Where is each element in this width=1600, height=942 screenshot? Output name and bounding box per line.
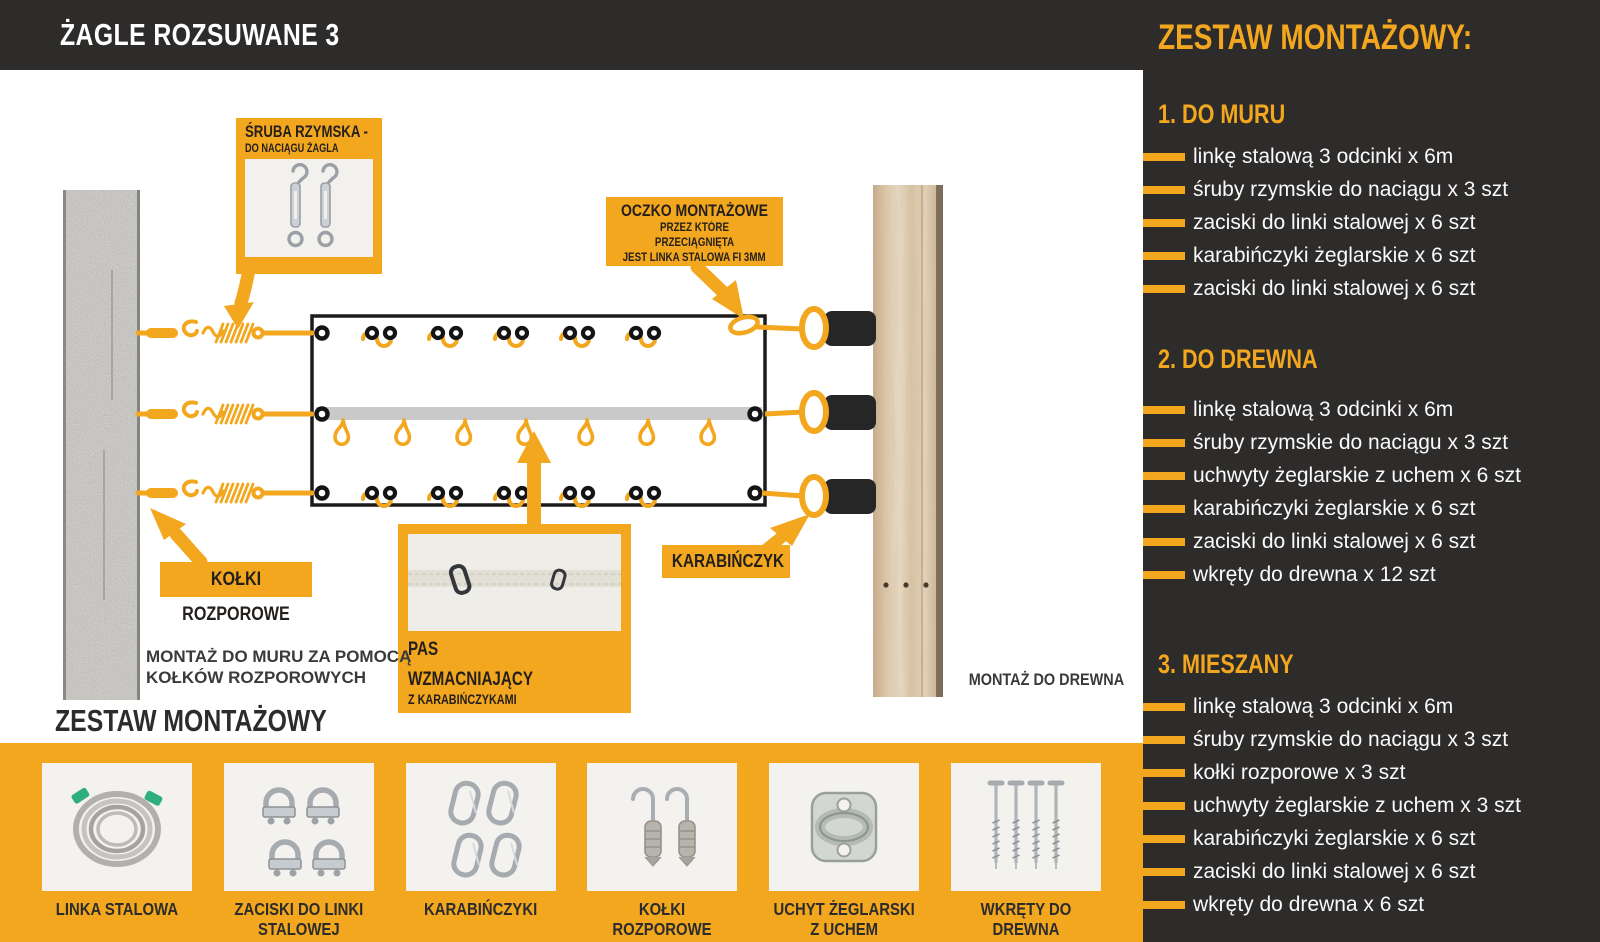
product-label: LINKA STALOWA xyxy=(32,900,202,920)
list-item: zaciski do linki stalowej x 6 szt xyxy=(1143,272,1600,305)
dash-bullet-icon xyxy=(1143,252,1185,260)
callout-sruba-rzymska: ŚRUBA RZYMSKA - DO NACIĄGU ŻAGLA xyxy=(236,118,382,274)
list-item: wkręty do drewna x 12 szt xyxy=(1143,558,1600,591)
callout-kolki-rozporowe: KOŁKI ROZPOROWE xyxy=(160,562,312,597)
dash-bullet-icon xyxy=(1143,472,1185,480)
list-item: linkę stalową 3 odcinki x 6m xyxy=(1143,140,1600,173)
dash-bullet-icon xyxy=(1143,186,1185,194)
list-item: śruby rzymskie do naciągu x 3 szt xyxy=(1143,173,1600,206)
reinforcing-strip xyxy=(316,407,762,420)
turnbuckle-cable-row xyxy=(138,321,312,342)
sruba-arrow-icon xyxy=(224,270,254,329)
dash-bullet-icon xyxy=(1143,703,1185,711)
product-card-zaciski: ZACISKI DO LINKI STALOWEJ xyxy=(224,763,374,942)
product-card-uchyt-zeglarski: UCHYT ŻEGLARSKI Z UCHEM xyxy=(769,763,919,942)
product-label: WKRĘTY DO DREWNA xyxy=(941,900,1111,939)
dash-bullet-icon xyxy=(1143,901,1185,909)
panel-heading: ZESTAW MONTAŻOWY: xyxy=(1158,18,1551,58)
list-item: śruby rzymskie do naciągu x 3 szt xyxy=(1143,723,1600,756)
dash-bullet-icon xyxy=(1143,802,1185,810)
product-strip: LINKA STALOWA xyxy=(0,743,1143,942)
section-items-do-muru: linkę stalową 3 odcinki x 6m śruby rzyms… xyxy=(1143,140,1600,305)
bottom-heading: ZESTAW MONTAŻOWY xyxy=(55,703,395,739)
list-item: uchwyty żeglarskie z uchem x 3 szt xyxy=(1143,789,1600,822)
list-item: zaciski do linki stalowej x 6 szt xyxy=(1143,855,1600,888)
dash-bullet-icon xyxy=(1143,439,1185,447)
dash-bullet-icon xyxy=(1143,835,1185,843)
wood-screw-dot xyxy=(923,582,928,587)
wire-clamps-icon xyxy=(224,763,374,891)
section-heading-do-drewna: 2. DO DREWNA xyxy=(1158,344,1358,375)
list-item: wkręty do drewna x 6 szt xyxy=(1143,888,1600,921)
dash-bullet-icon xyxy=(1143,505,1185,513)
callout-karabinczyk: KARABIŃCZYK xyxy=(662,545,790,578)
list-item: zaciski do linki stalowej x 6 szt xyxy=(1143,206,1600,239)
product-label: KARABIŃCZYKI xyxy=(396,900,566,920)
turnbuckle-cable-row xyxy=(138,402,312,423)
section-items-mieszany: linkę stalową 3 odcinki x 6m śruby rzyms… xyxy=(1143,690,1600,921)
oczko-arrow-icon xyxy=(697,267,744,319)
dash-bullet-icon xyxy=(1143,736,1185,744)
product-card-wkrety: WKRĘTY DO DREWNA xyxy=(951,763,1101,942)
concrete-wall xyxy=(63,190,140,700)
dash-bullet-icon xyxy=(1143,153,1185,161)
list-item: karabińczyki żeglarskie x 6 szt xyxy=(1143,822,1600,855)
dash-bullet-icon xyxy=(1143,406,1185,414)
product-card-linka-stalowa: LINKA STALOWA xyxy=(42,763,192,942)
post-attachments xyxy=(757,309,876,515)
mounting-strap xyxy=(824,479,876,514)
pad-eye-icon xyxy=(769,763,919,891)
list-item: śruby rzymskie do naciągu x 3 szt xyxy=(1143,426,1600,459)
sail-ring xyxy=(802,309,826,347)
dash-bullet-icon xyxy=(1143,219,1185,227)
product-label: ZACISKI DO LINKI STALOWEJ xyxy=(214,900,384,939)
callout-line3: JEST LINKA STALOWA FI 3MM xyxy=(606,251,783,266)
callout-title: ŚRUBA RZYMSKA - xyxy=(245,123,373,142)
caption-montaz-do-muru: MONTAŻ DO MURU ZA POMOCĄ KOŁKÓW ROZPOROW… xyxy=(146,646,411,688)
callout-line1: PAS xyxy=(408,639,621,661)
turnbuckles-photo-icon xyxy=(245,159,373,257)
wood-post xyxy=(873,185,943,697)
mounting-strap xyxy=(824,395,876,430)
wood-screws-icon xyxy=(951,763,1101,891)
section-heading-mieszany: 3. MIESZANY xyxy=(1158,649,1328,680)
sail-ring xyxy=(802,393,826,431)
kolki-arrow-icon xyxy=(150,508,201,562)
page: ŻAGLE ROZSUWANE 3 xyxy=(0,0,1600,942)
list-item: uchwyty żeglarskie z uchem x 6 szt xyxy=(1143,459,1600,492)
wire-rope-coil-icon xyxy=(42,763,192,891)
section-items-do-drewna: linkę stalową 3 odcinki x 6m śruby rzyms… xyxy=(1143,393,1600,591)
dash-bullet-icon xyxy=(1143,285,1185,293)
list-item: karabińczyki żeglarskie x 6 szt xyxy=(1143,239,1600,272)
dash-bullet-icon xyxy=(1143,868,1185,876)
product-card-kolki-rozporowe: KOŁKI ROZPOROWE xyxy=(587,763,737,942)
sail-ring xyxy=(802,477,826,515)
product-label: KOŁKI ROZPOROWE xyxy=(577,900,747,939)
product-card-karabinczyki: KARABIŃCZYKI xyxy=(406,763,556,942)
section-heading-do-muru: 1. DO MURU xyxy=(1158,99,1317,130)
mounting-strap xyxy=(824,311,876,346)
mounting-kit-panel: ZESTAW MONTAŻOWY: 1. DO MURU linkę stalo… xyxy=(1143,0,1600,942)
product-label: UCHYT ŻEGLARSKI Z UCHEM xyxy=(759,900,929,939)
wall-cables xyxy=(138,321,312,502)
dash-bullet-icon xyxy=(1143,769,1185,777)
wood-screw-dot xyxy=(903,582,908,587)
page-title: ŻAGLE ROZSUWANE 3 xyxy=(60,17,410,53)
list-item: linkę stalową 3 odcinki x 6m xyxy=(1143,393,1600,426)
carabiners-icon xyxy=(406,763,556,891)
strap-carabiners-photo-icon xyxy=(408,534,621,631)
list-item: zaciski do linki stalowej x 6 szt xyxy=(1143,525,1600,558)
list-item: karabińczyki żeglarskie x 6 szt xyxy=(1143,492,1600,525)
callout-oczko-montazowe: OCZKO MONTAŻOWE PRZEZ KTÓRE PRZECIĄGNIĘT… xyxy=(606,197,783,266)
callout-line2: PRZEZ KTÓRE PRZECIĄGNIĘTA xyxy=(606,221,783,251)
callout-subtitle: DO NACIĄGU ŻAGLA xyxy=(245,143,373,155)
callout-line3: Z KARABIŃCZYKAMI xyxy=(408,692,621,707)
dash-bullet-icon xyxy=(1143,538,1185,546)
callout-line2: WZMACNIAJĄCY xyxy=(408,669,621,691)
turnbuckle-cable-row xyxy=(138,481,312,502)
list-item: linkę stalową 3 odcinki x 6m xyxy=(1143,690,1600,723)
callout-pas-wzmacniajacy: PAS WZMACNIAJĄCY Z KARABIŃCZYKAMI xyxy=(398,524,631,713)
wood-screw-dot xyxy=(883,582,888,587)
expansion-hooks-icon xyxy=(587,763,737,891)
caption-montaz-do-drewna: MONTAŻ DO DREWNA xyxy=(955,670,1138,690)
dash-bullet-icon xyxy=(1143,571,1185,579)
callout-title: OCZKO MONTAŻOWE xyxy=(606,202,783,221)
list-item: kołki rozporowe x 3 szt xyxy=(1143,756,1600,789)
